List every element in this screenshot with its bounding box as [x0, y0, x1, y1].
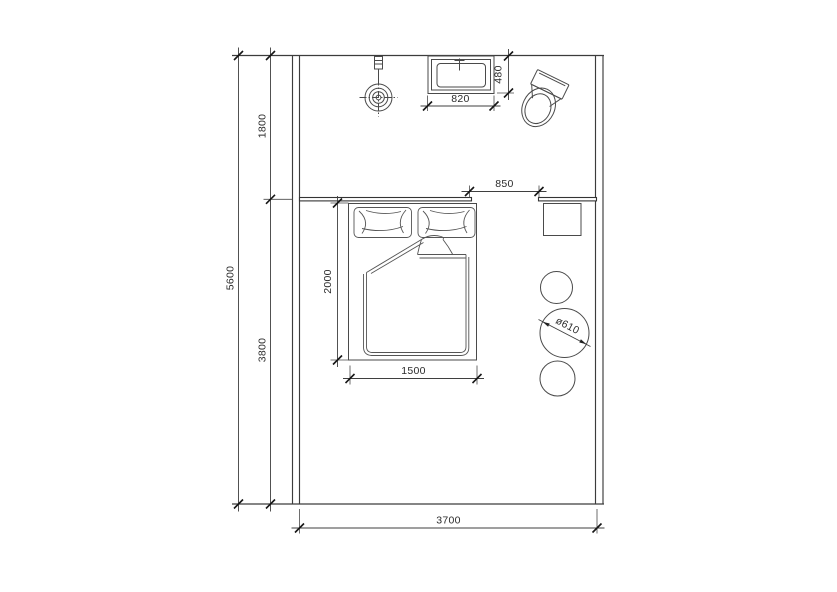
dim-label-overall-width: 3700 — [436, 515, 461, 527]
dim-label-basin-depth: 480 — [493, 65, 505, 83]
dim-label-overall-depth: 5600 — [225, 266, 237, 291]
room-walls — [232, 56, 604, 505]
dim-label-table-diameter: ø610 — [553, 315, 581, 337]
floor-plan-canvas: ø610 5600 1800 3800 3700 850 820 480 — [0, 0, 837, 592]
toilet — [514, 70, 569, 133]
dim-basin-width: 820 — [421, 93, 501, 111]
wash-basin — [428, 56, 494, 94]
partition-left-segment — [300, 198, 472, 201]
wall-left — [293, 56, 300, 505]
dim-label-basin-width: 820 — [451, 93, 469, 105]
dim-bed-width: 1500 — [343, 365, 484, 385]
pillow-left — [354, 208, 412, 238]
dim-opening: 850 — [462, 178, 547, 198]
dim-table-diameter: ø610 — [539, 315, 591, 347]
dim-label-opening: 850 — [495, 178, 513, 190]
dim-basin-depth: 480 — [493, 49, 515, 100]
pillow-right — [418, 208, 475, 238]
dim-bed-length: 2000 — [322, 196, 349, 367]
blanket — [364, 236, 469, 356]
stool-top — [541, 272, 573, 304]
stool-bottom — [540, 361, 575, 396]
wall-right — [596, 56, 604, 505]
dim-left-column: 5600 1800 3800 — [225, 48, 293, 512]
floor-plan-page: ø610 5600 1800 3800 3700 850 820 480 — [0, 0, 837, 592]
dim-overall-width: 3700 — [292, 509, 605, 534]
dim-label-bed-length: 2000 — [322, 269, 334, 294]
bed-frame — [349, 204, 477, 361]
dim-label-bed-width: 1500 — [401, 365, 426, 377]
dim-label-upper-bay: 1800 — [257, 114, 269, 139]
right-furniture: ø610 — [539, 204, 591, 397]
partition-right-segment — [539, 198, 597, 201]
basin-faucet — [455, 59, 465, 71]
bed — [349, 204, 477, 361]
dim-label-lower-bay: 3800 — [257, 338, 269, 363]
square-side-table — [544, 204, 582, 236]
partition-ledge — [300, 198, 597, 201]
pendant-light-symbol — [360, 57, 398, 117]
